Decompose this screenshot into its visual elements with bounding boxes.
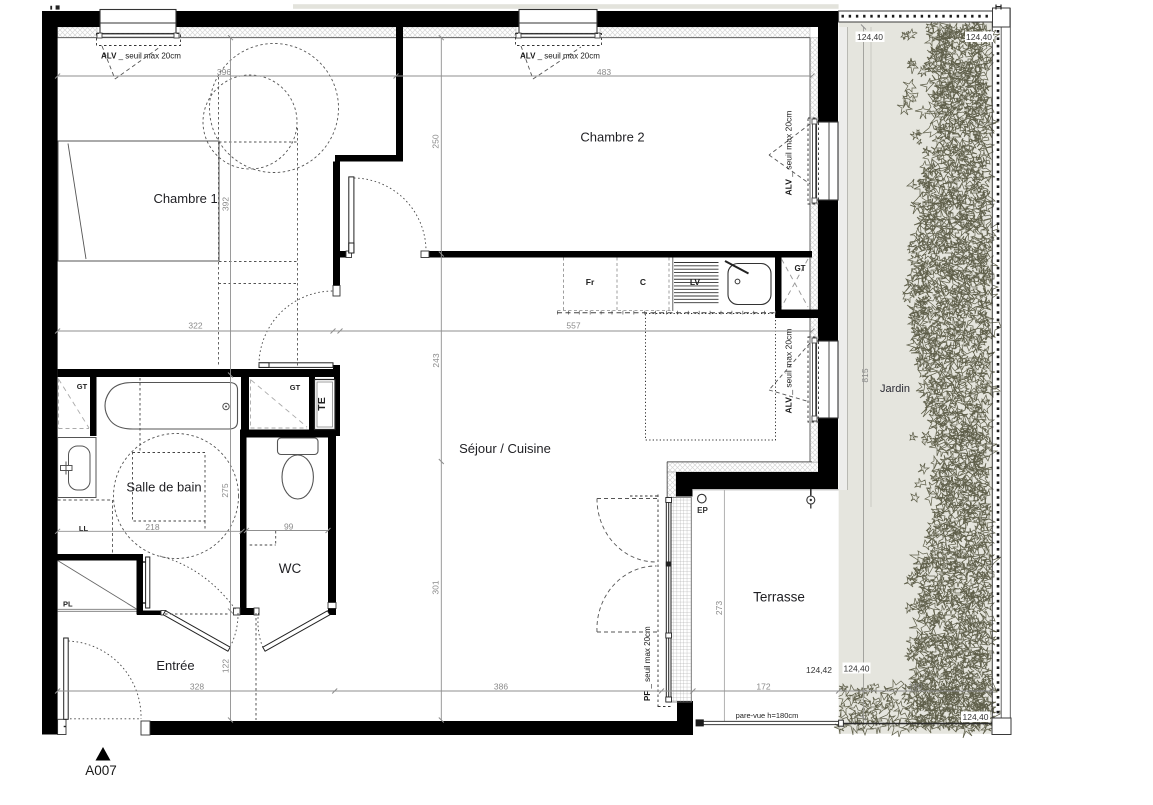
svg-text:99: 99 [284, 522, 294, 532]
svg-text:ALV _ seuil max 20cm: ALV _ seuil max 20cm [784, 111, 794, 196]
svg-text:Jardin: Jardin [880, 383, 910, 395]
svg-text:218: 218 [145, 522, 159, 532]
svg-text:ALV _ seuil max 20cm: ALV _ seuil max 20cm [784, 329, 794, 414]
svg-text:328: 328 [190, 682, 204, 692]
svg-text:243: 243 [431, 353, 441, 367]
svg-text:172: 172 [756, 682, 770, 692]
svg-text:A007: A007 [85, 763, 117, 778]
svg-text:386: 386 [494, 682, 508, 692]
svg-text:WC: WC [279, 561, 302, 576]
svg-text:124,42: 124,42 [806, 665, 832, 675]
svg-text:273: 273 [714, 601, 724, 615]
svg-text:124,40: 124,40 [963, 712, 989, 722]
svg-text:Chambre 1: Chambre 1 [153, 191, 217, 206]
svg-text:483: 483 [597, 67, 611, 77]
svg-text:C: C [640, 277, 646, 287]
svg-text:Chambre 2: Chambre 2 [580, 130, 644, 145]
svg-text:EP: EP [697, 506, 708, 515]
svg-text:275: 275 [220, 483, 230, 497]
svg-text:250: 250 [431, 134, 441, 148]
svg-text:Entrée: Entrée [156, 658, 194, 673]
svg-text:124,40: 124,40 [844, 664, 870, 674]
svg-text:396: 396 [217, 67, 231, 77]
svg-text:301: 301 [431, 580, 441, 594]
svg-text:392: 392 [221, 197, 231, 211]
svg-text:815: 815 [860, 368, 870, 382]
svg-text:180: 180 [908, 682, 922, 692]
svg-text:GT: GT [794, 264, 805, 273]
svg-text:PF _ seuil max 20cm: PF _ seuil max 20cm [643, 626, 652, 701]
svg-text:pare-vue h=180cm: pare-vue h=180cm [736, 711, 799, 720]
svg-text:GT: GT [77, 382, 88, 391]
svg-text:ALV _ seuil max 20cm: ALV _ seuil max 20cm [101, 52, 181, 61]
svg-text:124,40: 124,40 [857, 32, 883, 42]
svg-text:Salle de bain: Salle de bain [126, 480, 201, 495]
svg-text:TE: TE [316, 397, 328, 410]
svg-text:557: 557 [566, 321, 580, 331]
svg-text:122: 122 [221, 659, 231, 673]
svg-text:GT: GT [290, 383, 301, 392]
svg-text:Terrasse: Terrasse [753, 590, 805, 605]
svg-text:PL: PL [63, 600, 73, 609]
svg-text:124,40: 124,40 [966, 32, 992, 42]
svg-text:Séjour / Cuisine: Séjour / Cuisine [459, 441, 551, 456]
svg-text:322: 322 [188, 321, 202, 331]
svg-text:LV: LV [690, 277, 701, 287]
svg-text:ALV _ seuil max 20cm: ALV _ seuil max 20cm [520, 52, 600, 61]
svg-text:Fr: Fr [586, 277, 595, 287]
